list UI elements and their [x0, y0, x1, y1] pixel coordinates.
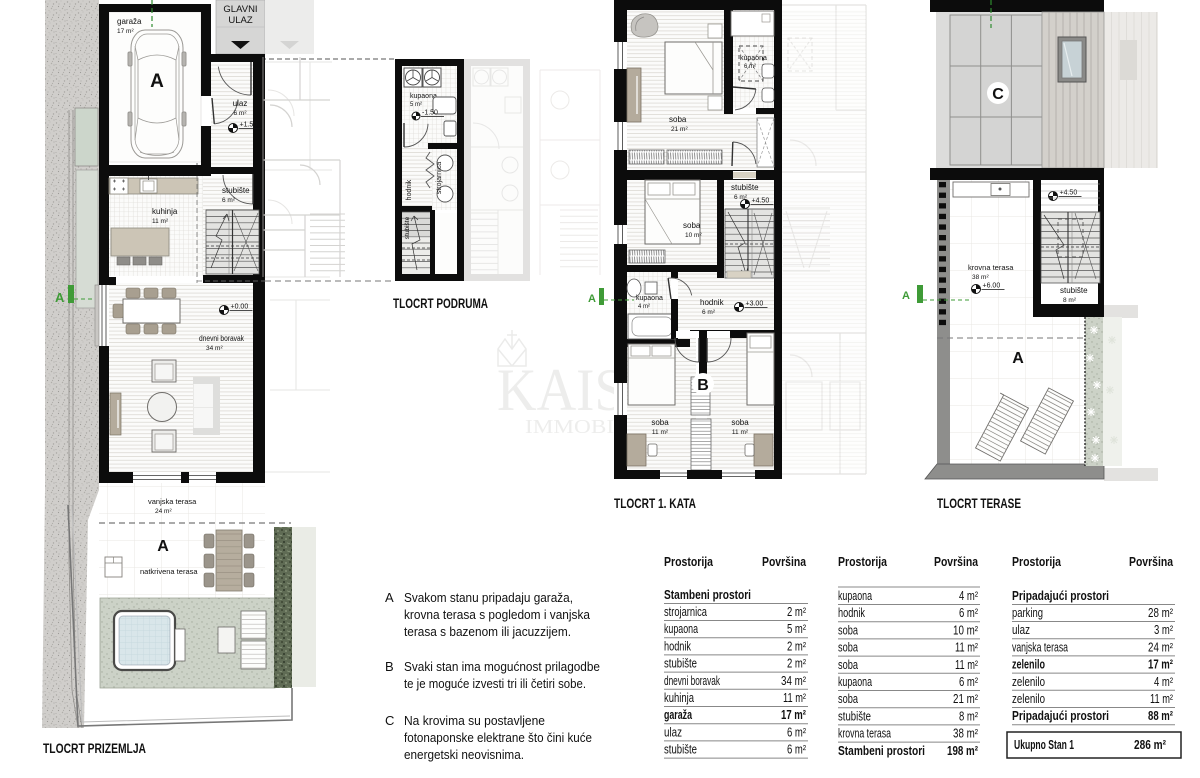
svg-text:ulaz: ulaz	[233, 99, 248, 108]
svg-text:8 m²: 8 m²	[1063, 297, 1077, 304]
svg-text:hodnik: hodnik	[838, 606, 866, 620]
svg-text:kupaona: kupaona	[636, 295, 663, 302]
svg-text:11 m²: 11 m²	[783, 691, 806, 705]
svg-text:2 m²: 2 m²	[787, 639, 806, 653]
svg-text:C: C	[385, 713, 394, 728]
svg-text:natkrivena terasa: natkrivena terasa	[140, 567, 198, 576]
svg-text:dnevni boravak: dnevni boravak	[664, 674, 720, 688]
svg-text:C: C	[992, 86, 1004, 103]
svg-text:34 m²: 34 m²	[206, 345, 223, 352]
svg-text:17 m²: 17 m²	[1148, 658, 1173, 672]
svg-text:kuhinja: kuhinja	[664, 691, 694, 705]
svg-text:GLAVNI: GLAVNI	[223, 4, 257, 15]
svg-text:+4.50: +4.50	[752, 198, 770, 205]
svg-text:11 m²: 11 m²	[732, 429, 749, 436]
svg-text:kupaona: kupaona	[838, 675, 872, 689]
svg-text:Prostorija: Prostorija	[1012, 555, 1062, 569]
svg-text:stubište: stubište	[731, 183, 759, 192]
svg-text:Površina: Površina	[1129, 555, 1174, 569]
svg-text:stubište: stubište	[664, 743, 697, 757]
svg-text:Na krovima su postavljene: Na krovima su postavljene	[404, 714, 545, 728]
svg-text:Površina: Površina	[762, 555, 807, 569]
svg-text:4 m²: 4 m²	[638, 304, 650, 310]
svg-text:198 m²: 198 m²	[947, 744, 978, 758]
svg-text:6 m²: 6 m²	[222, 197, 236, 204]
svg-text:286 m²: 286 m²	[1134, 738, 1166, 752]
svg-text:fotonaponske elektrane što čin: fotonaponske elektrane što čini kuće	[404, 731, 592, 745]
svg-text:energetski neovisnima.: energetski neovisnima.	[404, 748, 524, 762]
svg-text:kuhinja: kuhinja	[152, 207, 178, 216]
svg-text:zelenilo: zelenilo	[1012, 658, 1045, 672]
svg-text:kupaona: kupaona	[740, 55, 767, 62]
svg-text:vanjska terasa: vanjska terasa	[1012, 640, 1068, 654]
svg-text:kupaona: kupaona	[664, 622, 698, 636]
svg-text:6 m²: 6 m²	[787, 743, 806, 757]
svg-text:strojarnica: strojarnica	[436, 162, 443, 194]
svg-text:6 m²: 6 m²	[959, 606, 978, 620]
svg-text:zelenilo: zelenilo	[1012, 675, 1045, 689]
svg-text:24 m²: 24 m²	[1148, 640, 1173, 654]
svg-text:stubište: stubište	[838, 709, 871, 723]
svg-text:11 m²: 11 m²	[652, 429, 669, 436]
svg-text:soba: soba	[683, 221, 701, 230]
svg-text:hodnik: hodnik	[664, 639, 692, 653]
svg-text:Stambeni prostori: Stambeni prostori	[838, 744, 925, 758]
svg-text:2 m²: 2 m²	[787, 605, 806, 619]
svg-text:10 m²: 10 m²	[685, 232, 702, 239]
svg-text:parking: parking	[1012, 606, 1043, 620]
svg-text:8 m²: 8 m²	[959, 709, 978, 723]
svg-text:4 m²: 4 m²	[959, 589, 978, 603]
svg-text:17 m²: 17 m²	[117, 28, 134, 35]
svg-text:soba: soba	[838, 692, 858, 706]
svg-text:28 m²: 28 m²	[1148, 606, 1173, 620]
svg-text:garaža: garaža	[664, 708, 693, 722]
svg-text:B: B	[385, 659, 394, 674]
svg-text:TLOCRT 1. KATA: TLOCRT 1. KATA	[614, 496, 696, 511]
svg-text:+4.50: +4.50	[1060, 190, 1078, 197]
svg-text:5 m²: 5 m²	[787, 622, 806, 636]
svg-text:A: A	[588, 293, 596, 305]
svg-text:ULAZ: ULAZ	[228, 15, 252, 26]
svg-text:6 m²: 6 m²	[702, 309, 716, 316]
svg-text:Prostorija: Prostorija	[838, 555, 888, 569]
svg-text:38 m²: 38 m²	[972, 274, 989, 281]
svg-text:ulaz: ulaz	[664, 725, 682, 739]
svg-text:17 m²: 17 m²	[781, 708, 806, 722]
svg-text:11 m²: 11 m²	[955, 641, 978, 655]
svg-text:11 m²: 11 m²	[152, 218, 169, 225]
svg-text:Prostorija: Prostorija	[664, 555, 714, 569]
svg-text:A: A	[150, 71, 164, 92]
svg-text:soba: soba	[731, 418, 749, 427]
svg-text:stubište: stubište	[222, 186, 250, 195]
svg-text:6 m²: 6 m²	[744, 64, 756, 70]
svg-text:strojarnica: strojarnica	[664, 605, 707, 619]
svg-text:24 m²: 24 m²	[155, 508, 172, 515]
svg-text:+6.00: +6.00	[983, 283, 1001, 290]
svg-text:Svakom stanu pripadaju garaža,: Svakom stanu pripadaju garaža,	[404, 591, 573, 605]
svg-text:ulaz: ulaz	[1012, 623, 1030, 637]
svg-text:A: A	[157, 538, 169, 555]
svg-text:soba: soba	[838, 641, 858, 655]
svg-text:krovna terasa s pogledom i van: krovna terasa s pogledom i vanjska	[404, 608, 590, 622]
svg-text:6 m²: 6 m²	[234, 110, 248, 117]
svg-text:6 m²: 6 m²	[787, 725, 806, 739]
svg-text:te je moguće izvesti tri ili č: te je moguće izvesti tri ili četiri sobe…	[404, 677, 586, 691]
svg-text:Svaki stan ima mogućnost prila: Svaki stan ima mogućnost prilagodbe	[404, 660, 600, 674]
svg-text:stubište: stubište	[404, 216, 411, 239]
svg-text:garaža: garaža	[117, 17, 142, 26]
svg-text:kupaona: kupaona	[838, 589, 872, 603]
svg-text:zelenilo: zelenilo	[1012, 692, 1045, 706]
svg-text:stubište: stubište	[1060, 286, 1088, 295]
svg-text:hodnik: hodnik	[406, 179, 413, 200]
svg-text:A: A	[902, 290, 910, 302]
svg-text:+3.00: +3.00	[746, 301, 764, 308]
svg-text:21 m²: 21 m²	[953, 692, 978, 706]
svg-text:soba: soba	[838, 623, 858, 637]
svg-text:6 m²: 6 m²	[959, 675, 978, 689]
svg-text:38 m²: 38 m²	[953, 727, 978, 741]
svg-text:Površina: Površina	[934, 555, 979, 569]
svg-text:Pripadajući prostori: Pripadajući prostori	[1012, 709, 1109, 723]
svg-text:-1.50: -1.50	[422, 110, 438, 117]
svg-text:soba: soba	[838, 658, 858, 672]
svg-text:Stambeni prostori: Stambeni prostori	[664, 588, 751, 602]
svg-text:11 m²: 11 m²	[1150, 692, 1173, 706]
svg-text:vanjska terasa: vanjska terasa	[148, 497, 197, 506]
svg-text:soba: soba	[669, 115, 687, 124]
svg-text:+0.00: +0.00	[231, 304, 249, 311]
svg-text:A: A	[1012, 350, 1024, 367]
svg-text:terasa s bazenom ili jacuzzije: terasa s bazenom ili jacuzzijem.	[404, 625, 571, 639]
svg-text:hodnik: hodnik	[700, 298, 725, 307]
svg-text:A: A	[385, 590, 394, 605]
svg-text:10 m²: 10 m²	[953, 623, 978, 637]
svg-text:21 m²: 21 m²	[671, 126, 688, 133]
svg-text:soba: soba	[651, 418, 669, 427]
svg-text:B: B	[697, 377, 709, 394]
svg-text:3 m²: 3 m²	[1154, 623, 1173, 637]
svg-text:TLOCRT TERASE: TLOCRT TERASE	[937, 496, 1021, 511]
svg-text:A: A	[55, 290, 65, 305]
svg-text:TLOCRT PRIZEMLJA: TLOCRT PRIZEMLJA	[43, 741, 146, 756]
svg-text:dnevni boravak: dnevni boravak	[199, 334, 245, 343]
svg-text:stubište: stubište	[664, 657, 697, 671]
svg-text:Pripadajući prostori: Pripadajući prostori	[1012, 589, 1109, 603]
svg-text:TLOCRT PODRUMA: TLOCRT PODRUMA	[393, 296, 488, 311]
svg-text:5 m²: 5 m²	[410, 102, 422, 108]
svg-text:krovna terasa: krovna terasa	[968, 263, 1014, 272]
svg-text:krovna terasa: krovna terasa	[838, 727, 891, 741]
svg-text:34 m²: 34 m²	[781, 674, 806, 688]
svg-text:+1.50: +1.50	[240, 122, 258, 129]
svg-text:88 m²: 88 m²	[1148, 709, 1173, 723]
svg-text:4 m²: 4 m²	[1154, 675, 1173, 689]
svg-text:2 m²: 2 m²	[787, 657, 806, 671]
svg-text:Ukupno Stan 1: Ukupno Stan 1	[1014, 738, 1074, 752]
svg-text:11 m²: 11 m²	[955, 658, 978, 672]
